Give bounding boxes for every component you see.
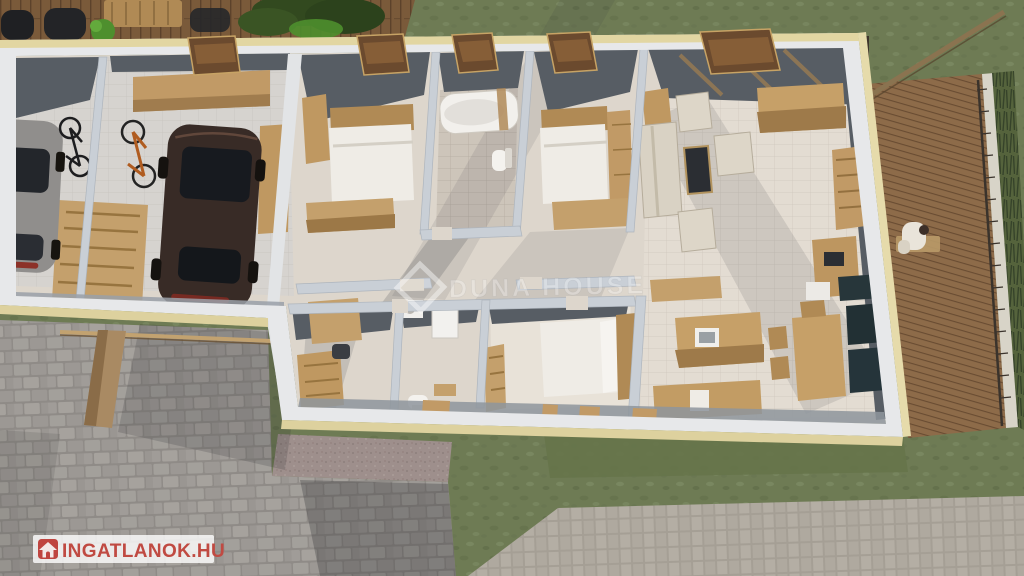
lounge-chair [190, 8, 230, 32]
gravel-strip [272, 434, 452, 482]
dining-chair [770, 356, 790, 380]
sofa [638, 122, 682, 218]
dining-chair [800, 300, 826, 318]
agency-watermark-text: DUNA HOUSE [449, 271, 647, 303]
tv-device [824, 252, 844, 266]
bed-bench [552, 198, 630, 230]
armchair [676, 92, 712, 132]
portal-watermark-text: INGATLANOK.HU [62, 541, 225, 562]
armchair [714, 132, 754, 176]
kitchen-counter [650, 276, 722, 302]
bed [329, 124, 414, 204]
wc-bench [434, 384, 456, 396]
office-chair [332, 344, 350, 359]
bedroom-2 [540, 106, 633, 230]
watermark-portal: INGATLANOK.HU [33, 535, 225, 563]
appliance [806, 282, 830, 300]
bed [540, 124, 608, 204]
coffee-table [684, 146, 712, 194]
deck-table [104, 0, 182, 27]
house-icon [38, 539, 58, 559]
armchair [678, 208, 716, 252]
lounge-chair [44, 8, 86, 40]
lounge-chair [1, 10, 34, 40]
shower-tray [432, 308, 458, 338]
dining-table [792, 314, 846, 401]
toilet [492, 148, 512, 171]
listing-photo: DUNA HOUSE INGATLANOK.HU [0, 0, 1024, 576]
wardrobe [302, 94, 330, 164]
floorplan-render-canvas: DUNA HOUSE INGATLANOK.HU [0, 0, 1024, 576]
dining-chair [768, 326, 788, 350]
